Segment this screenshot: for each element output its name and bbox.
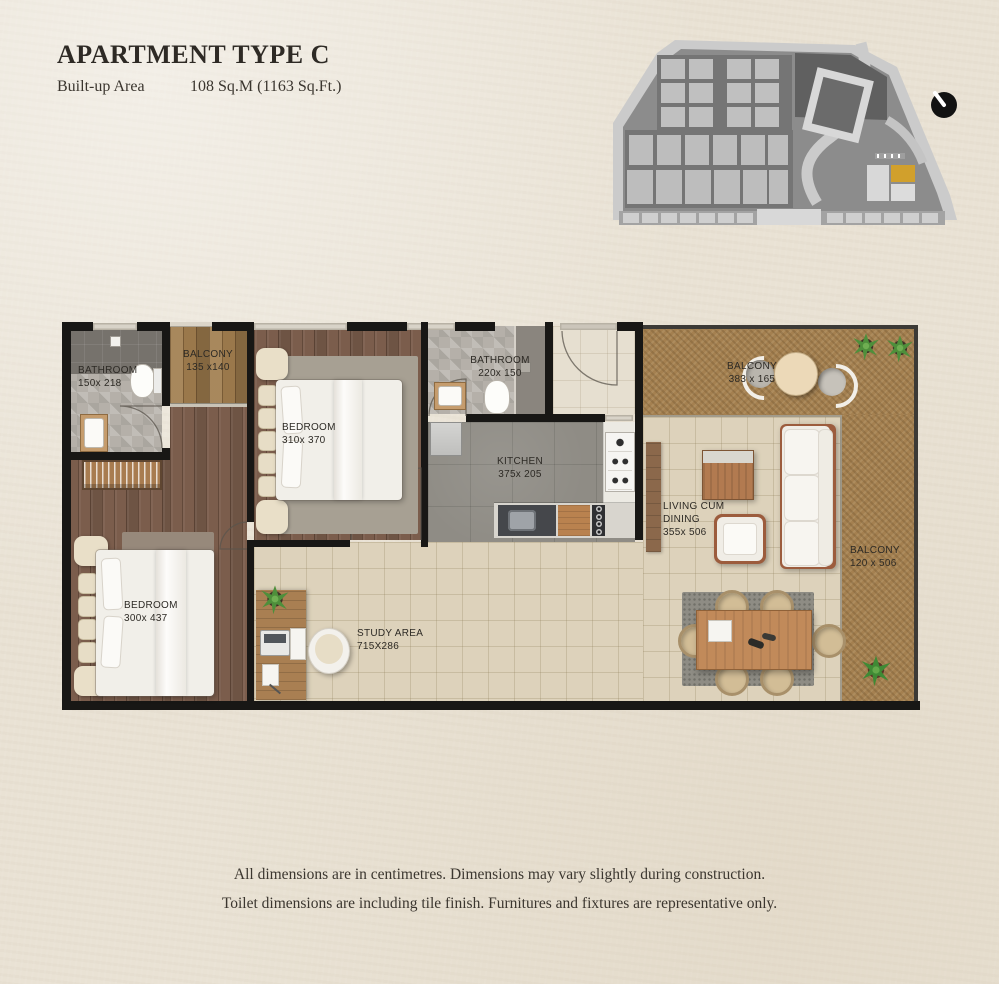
fridge-icon (430, 422, 462, 456)
stove-knobs (592, 505, 605, 536)
cutting-board (558, 505, 590, 536)
papers (290, 628, 306, 660)
wall-spine (247, 322, 254, 522)
built-up-value: 108 Sq.M (1163 Sq.Ft.) (190, 78, 341, 96)
sink-icon (80, 414, 108, 452)
floor-plan: BATHROOM 150x 218 BALCONY 135 x140 BEDRO… (62, 322, 920, 710)
window (254, 323, 347, 330)
coffee-table (702, 450, 754, 500)
stove-icon (605, 432, 635, 492)
page-title: APARTMENT TYPE C (57, 40, 330, 70)
room-label-balcony-1: BALCONY 135 x140 (168, 348, 248, 374)
balcony-chair (818, 368, 846, 396)
headboard (78, 572, 98, 664)
wall-foyer (635, 322, 643, 540)
nightstand (256, 348, 288, 380)
disclaimer-line-1: All dimensions are in centimetres. Dimen… (0, 860, 999, 889)
room-label-bathroom-2: BATHROOM 220x 150 (458, 354, 542, 380)
plant-icon (884, 332, 916, 364)
highlighted-unit (891, 165, 915, 182)
room-label-study: STUDY AREA 715X286 (357, 627, 423, 653)
plant-icon (858, 652, 894, 688)
pillow (100, 615, 124, 668)
brochure-page: APARTMENT TYPE C Built-up Area 108 Sq.M … (0, 0, 999, 984)
wall (347, 322, 407, 331)
entry-door (560, 323, 617, 330)
room-label-kitchen: KITCHEN 375x 205 (482, 455, 558, 481)
plant-icon (258, 582, 292, 616)
wall-bathroom-2 (545, 322, 553, 422)
laptop-icon (260, 630, 290, 656)
wall-bathroom-2 (466, 414, 605, 422)
window (407, 323, 455, 330)
room-label-bathroom-1: BATHROOM 150x 218 (78, 364, 137, 390)
room-label-living: LIVING CUM DINING 355x 506 (663, 500, 724, 539)
foyer-floor (553, 326, 635, 414)
balcony-1-sliding-door (170, 403, 247, 407)
built-up-area: Built-up Area 108 Sq.M (1163 Sq.Ft.) (57, 78, 457, 96)
kitchen-door (605, 415, 633, 421)
headboard (258, 384, 278, 498)
sofa (780, 424, 836, 569)
plant-icon (850, 330, 882, 362)
wall-bedroom-1 (247, 540, 350, 547)
wall-bedroom-1 (421, 322, 428, 547)
disclaimer-line-2: Toilet dimensions are including tile fin… (0, 889, 999, 918)
wall (455, 322, 495, 331)
wall-bathroom-1 (62, 452, 170, 460)
room-label-bedroom-1: BEDROOM 310x 370 (282, 421, 336, 447)
table-runner (708, 620, 732, 642)
wall-bottom (62, 701, 920, 710)
room-label-balcony-right: BALCONY 120 x 506 (850, 544, 900, 570)
sink-icon (434, 382, 466, 410)
dining-chair (812, 624, 846, 658)
nightstand (256, 500, 288, 534)
kitchen-sink-icon (508, 510, 536, 531)
site-map (605, 25, 965, 235)
sideboard (646, 442, 661, 552)
study-chair (308, 628, 350, 674)
duvet-fold (334, 380, 362, 500)
disclaimer: All dimensions are in centimetres. Dimen… (0, 860, 999, 918)
room-label-bedroom-2: BEDROOM 300x 437 (124, 599, 178, 625)
wall-spine (247, 547, 254, 701)
window (93, 323, 137, 330)
pillow (101, 558, 124, 611)
wall-left (62, 322, 71, 710)
toilet-tank (153, 368, 162, 394)
toilet-icon (484, 380, 510, 414)
wall (137, 322, 162, 331)
notebook (262, 664, 279, 686)
room-label-balcony-top: BALCONY 383 x 165 (707, 360, 797, 386)
wardrobe (82, 460, 162, 490)
north-indicator-icon (931, 92, 957, 118)
shower-head-icon (110, 336, 121, 347)
built-up-label: Built-up Area (57, 78, 145, 95)
